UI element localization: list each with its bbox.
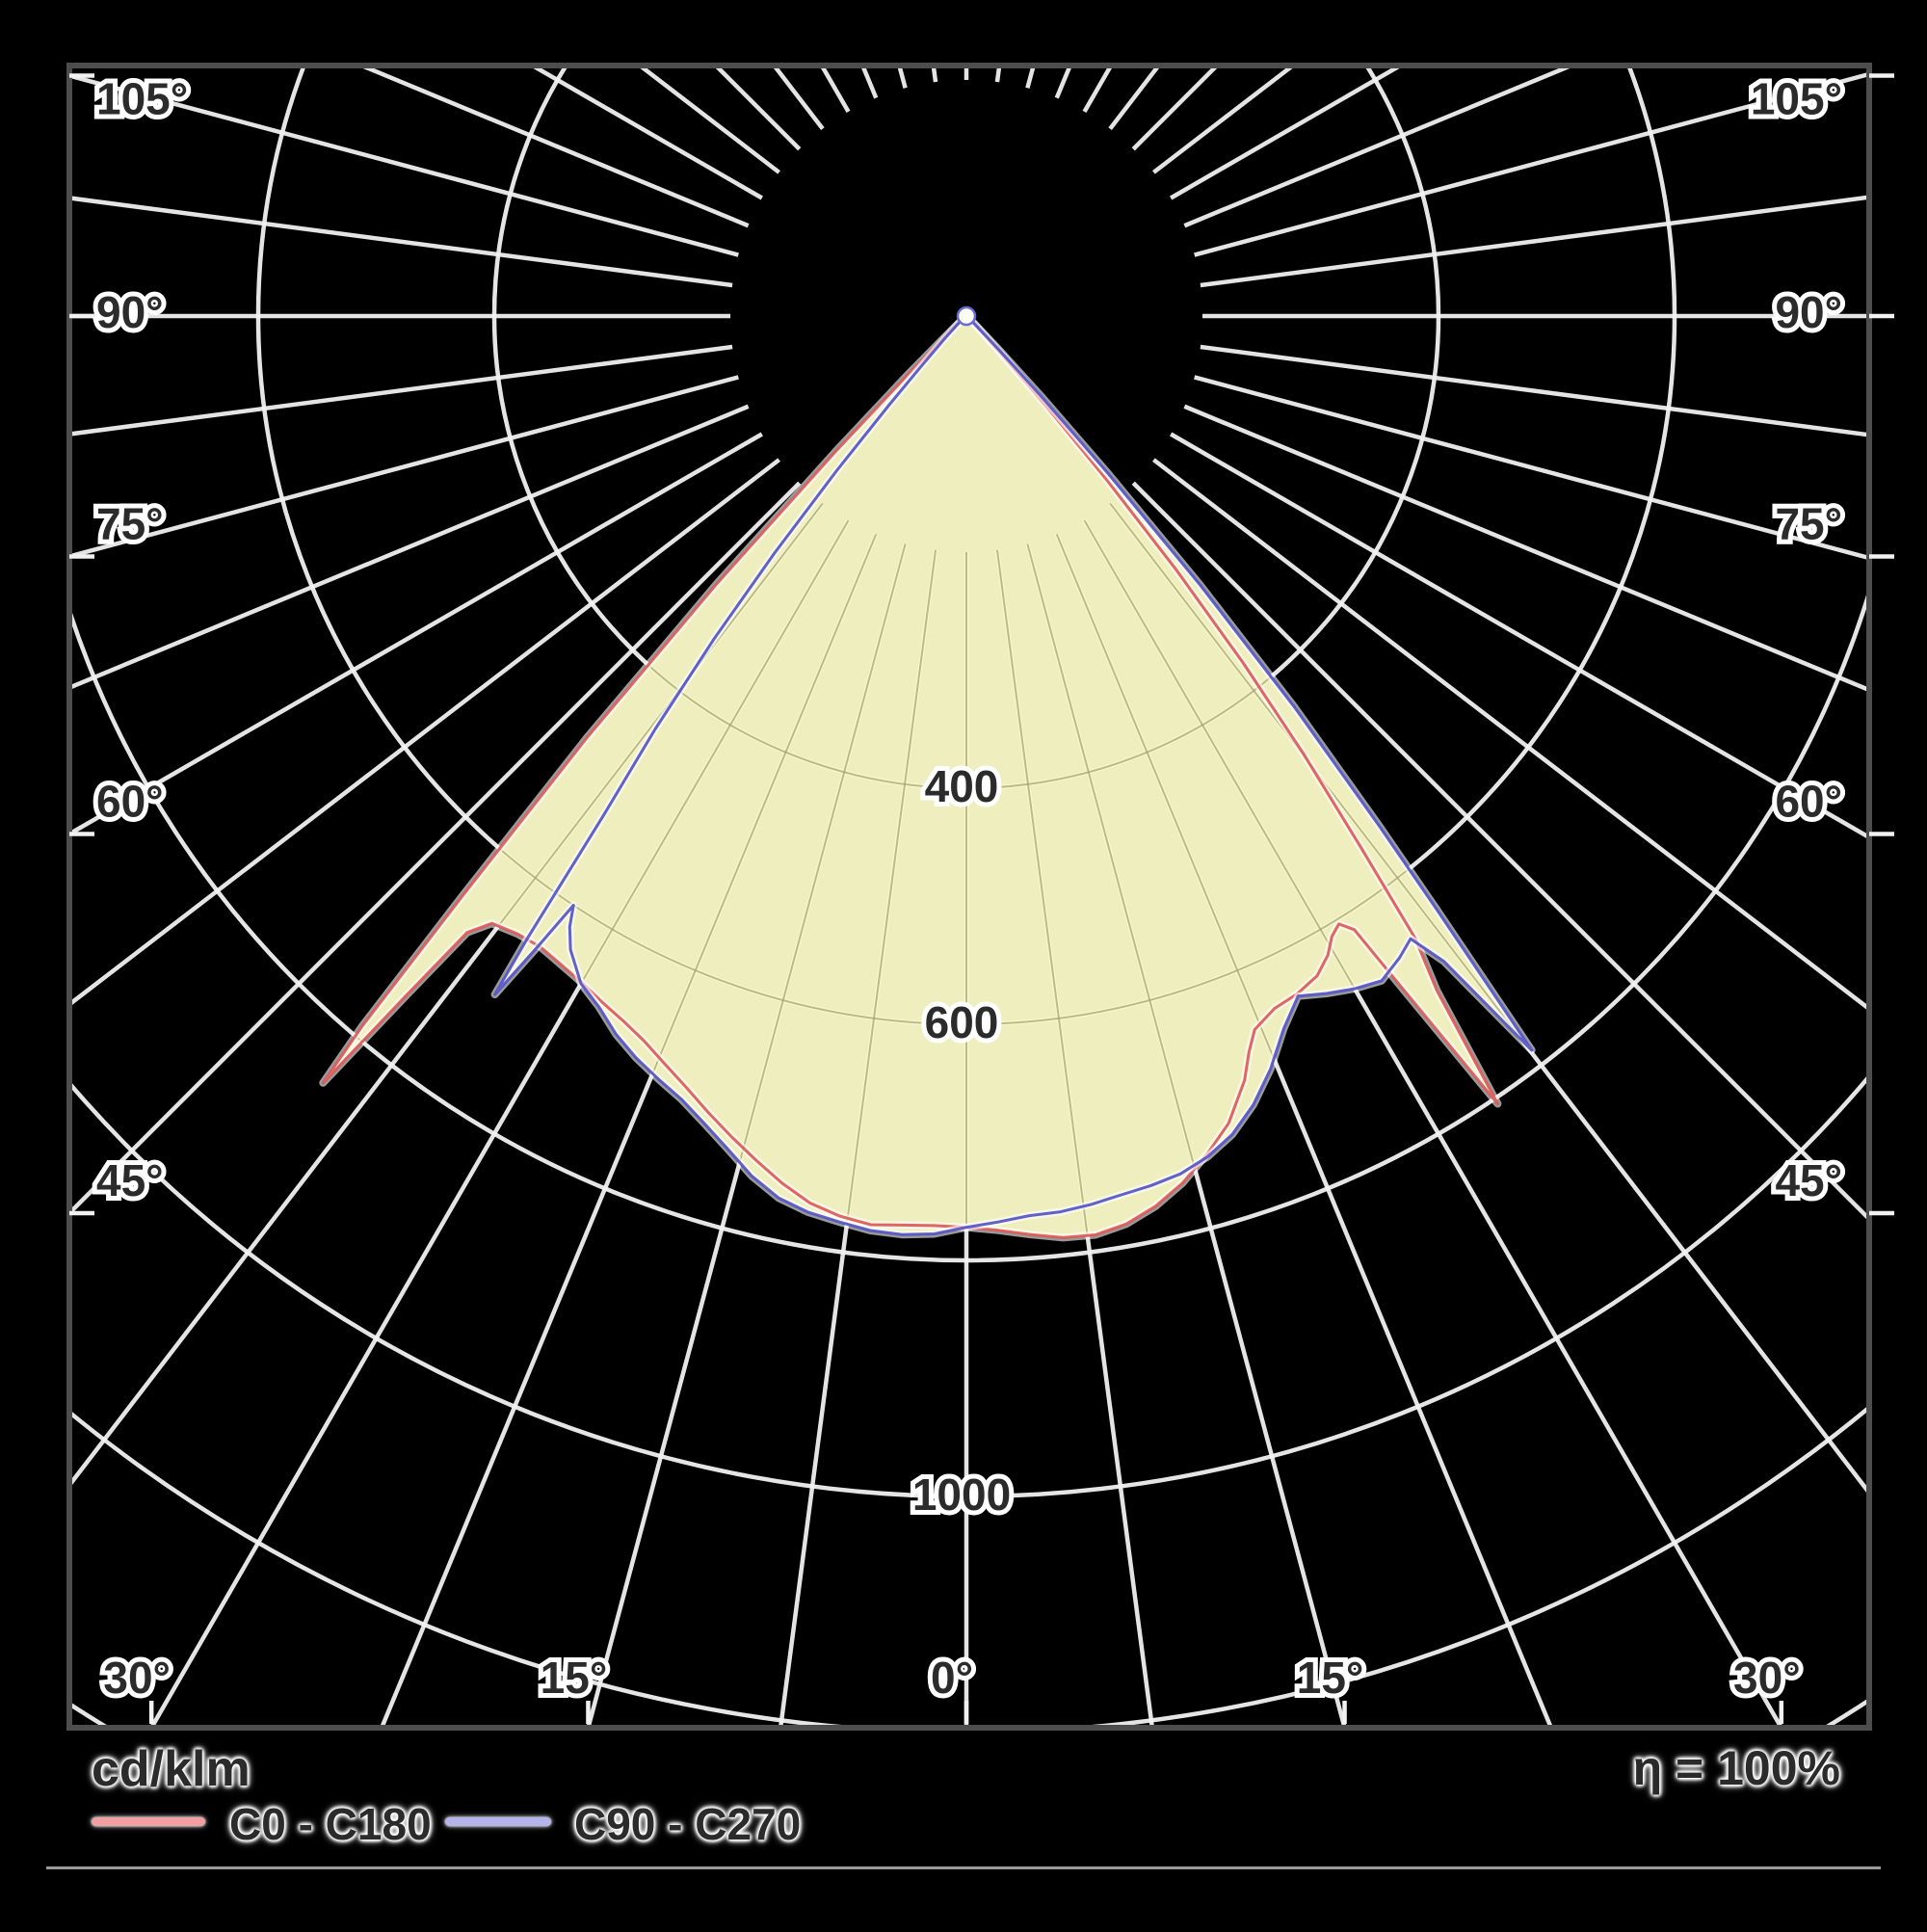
- polar-chart-canvas: 105°105°90°90°75°75°60°60°45°45°30°15°0°…: [0, 0, 1927, 1932]
- units-label: cd/klm: [92, 1740, 251, 1798]
- ring-label-1000: 1000: [912, 1469, 1011, 1520]
- legend-line-c90-c270: [445, 1817, 551, 1826]
- origin-marker: [958, 307, 975, 325]
- angle-label-left-105: 105°: [96, 74, 188, 124]
- angle-label-left-75: 75°: [96, 499, 164, 549]
- ring-label-400: 400: [925, 761, 999, 811]
- angle-label-right-75: 75°: [1775, 499, 1842, 549]
- legend-line-c0-c180: [92, 1817, 205, 1826]
- angle-label-right-45: 45°: [1775, 1155, 1842, 1205]
- light-output-ratio-label: η = 100%: [1633, 1740, 1840, 1796]
- angle-label-bottom-15°: 15°: [1297, 1653, 1364, 1703]
- angle-label-left-45: 45°: [96, 1155, 164, 1205]
- polar-chart: 105°105°90°90°75°75°60°60°45°45°30°15°0°…: [0, 0, 1927, 1927]
- angle-label-right-60: 60°: [1775, 777, 1842, 827]
- angle-label-bottom-15°: 15°: [541, 1653, 608, 1703]
- angle-label-right-90: 90°: [1775, 287, 1842, 337]
- angle-label-bottom-30°: 30°: [103, 1653, 171, 1703]
- ring-label-600: 600: [925, 997, 999, 1047]
- angle-label-left-60: 60°: [96, 777, 164, 827]
- angle-label-left-90: 90°: [96, 287, 164, 337]
- legend-label-c90-c270: C90 - C270: [574, 1798, 801, 1850]
- angle-label-bottom-30°: 30°: [1733, 1653, 1801, 1703]
- footer-divider: [46, 1866, 1881, 1869]
- angle-label-bottom-0°: 0°: [931, 1653, 973, 1703]
- angle-label-right-105: 105°: [1751, 74, 1842, 124]
- photometric-diagram: 105°105°90°90°75°75°60°60°45°45°30°15°0°…: [0, 0, 1927, 1927]
- legend-label-c0-c180: C0 - C180: [229, 1798, 432, 1850]
